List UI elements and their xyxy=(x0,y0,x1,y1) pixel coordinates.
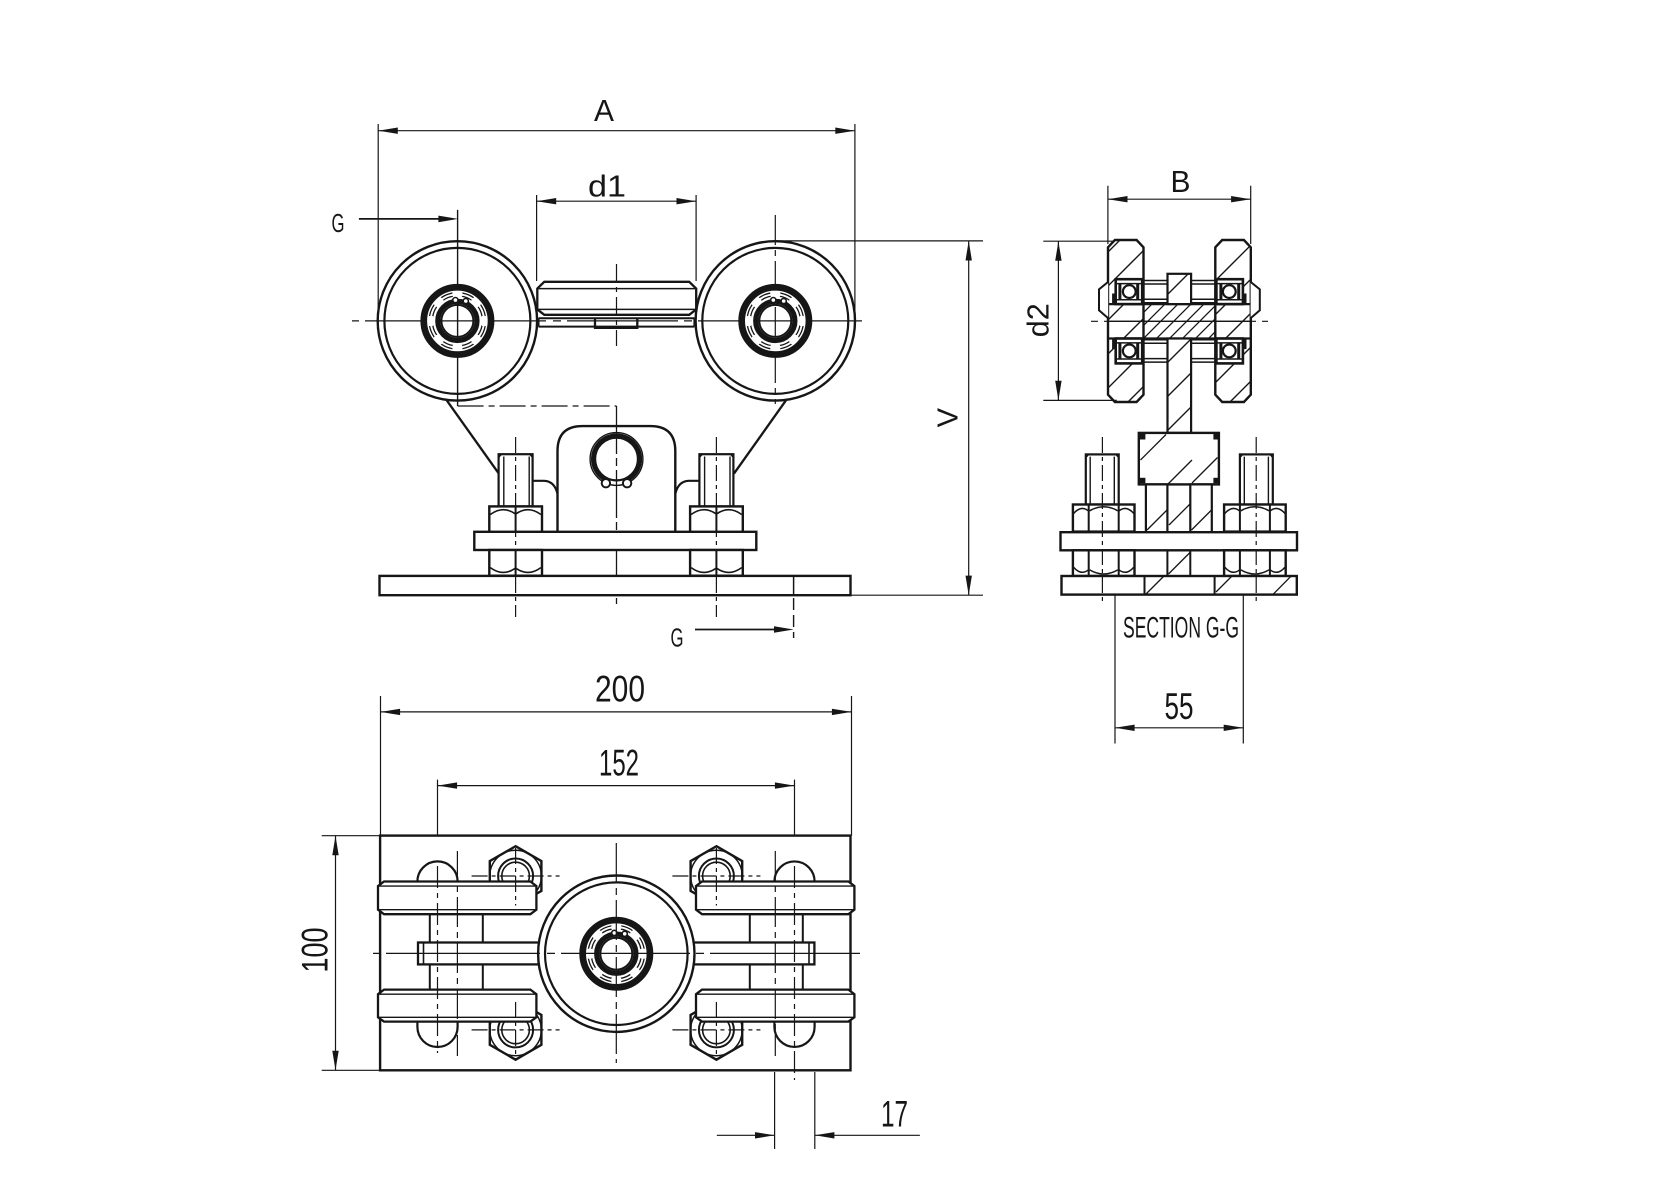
svg-text:A: A xyxy=(594,93,614,128)
svg-text:55: 55 xyxy=(1165,686,1194,727)
svg-text:200: 200 xyxy=(595,669,645,710)
svg-text:d1: d1 xyxy=(588,168,626,203)
svg-text:d2: d2 xyxy=(1021,303,1056,337)
svg-text:152: 152 xyxy=(599,742,639,783)
svg-text:V: V xyxy=(933,407,965,427)
svg-text:100: 100 xyxy=(295,928,336,973)
svg-text:B: B xyxy=(1171,164,1191,199)
svg-text:SECTION G-G: SECTION G-G xyxy=(1123,612,1239,645)
svg-text:G: G xyxy=(332,208,345,238)
svg-text:17: 17 xyxy=(881,1094,908,1135)
svg-text:G: G xyxy=(671,623,684,653)
